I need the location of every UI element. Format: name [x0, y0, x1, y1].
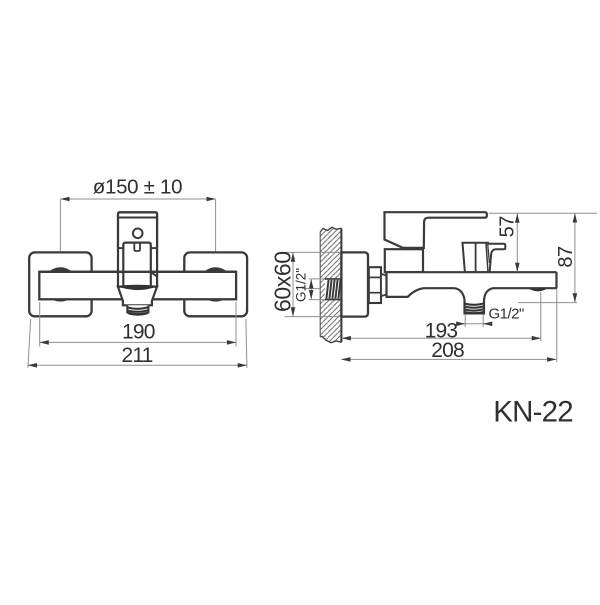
svg-text:208: 208	[431, 339, 464, 362]
svg-text:ø150 ± 10: ø150 ± 10	[93, 175, 182, 198]
svg-text:190: 190	[122, 321, 155, 344]
svg-text:KN-22: KN-22	[493, 396, 573, 429]
svg-text:87: 87	[555, 246, 577, 268]
svg-text:60x60: 60x60	[269, 251, 295, 312]
svg-text:G1/2": G1/2"	[293, 268, 308, 302]
svg-text:57: 57	[497, 216, 519, 238]
svg-text:G1/2": G1/2"	[489, 306, 525, 323]
svg-text:211: 211	[121, 344, 152, 367]
